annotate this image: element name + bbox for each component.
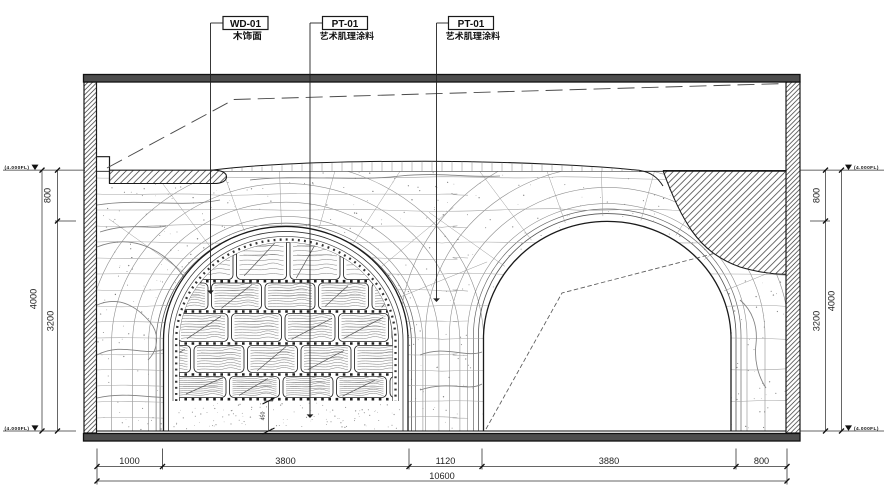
svg-text:PT-01: PT-01: [332, 19, 359, 30]
svg-text:800: 800: [754, 456, 769, 466]
svg-text:3800: 3800: [275, 456, 295, 466]
svg-text:4000: 4000: [29, 289, 39, 309]
svg-text:1000: 1000: [119, 456, 139, 466]
svg-text:800: 800: [812, 188, 822, 203]
svg-text:(4.000FL): (4.000FL): [5, 165, 30, 171]
svg-text:1120: 1120: [436, 456, 456, 466]
svg-text:(4.000FL): (4.000FL): [854, 165, 879, 171]
svg-text:800: 800: [43, 188, 53, 203]
svg-text:WD-01: WD-01: [230, 19, 262, 30]
svg-text:3200: 3200: [812, 311, 822, 331]
svg-text:(4.000FL): (4.000FL): [5, 426, 30, 432]
svg-text:450: 450: [261, 412, 267, 421]
svg-text:(4.000FL): (4.000FL): [854, 426, 879, 432]
svg-text:PT-01: PT-01: [458, 19, 485, 30]
svg-text:10600: 10600: [429, 471, 455, 481]
svg-text:3200: 3200: [46, 311, 56, 331]
svg-text:3880: 3880: [599, 456, 619, 466]
svg-text:4000: 4000: [827, 291, 837, 311]
